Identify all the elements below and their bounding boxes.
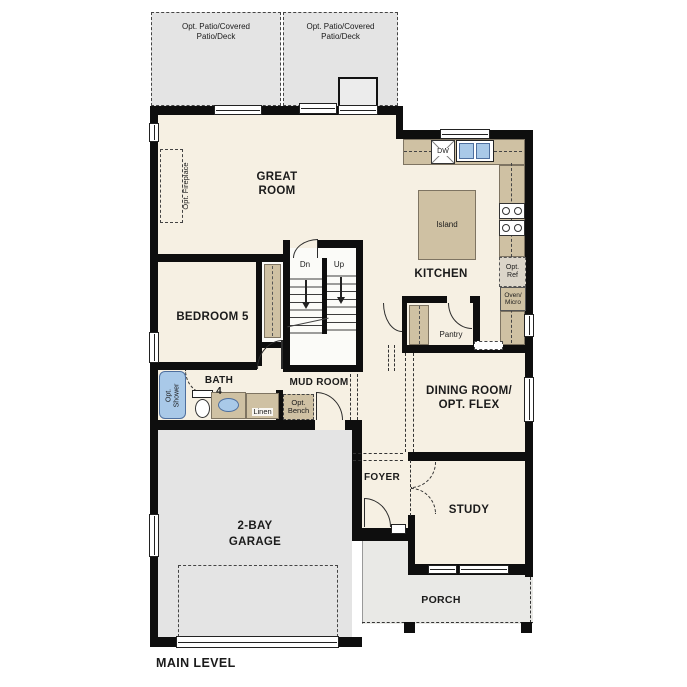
porch-label: PORCH (406, 594, 476, 606)
upper-cabinet-dash (511, 163, 512, 343)
linen-closet: Linen (246, 393, 279, 419)
window (214, 105, 262, 115)
porch-edge-bottom (362, 622, 533, 623)
upper-cabinet-dash (404, 151, 432, 152)
study-left-wall (408, 515, 415, 575)
dishwasher-label: DW (436, 148, 450, 156)
stair-top-wall (318, 240, 363, 248)
burner-icon (502, 207, 510, 215)
mudroom-garage-door-leaf (316, 392, 318, 420)
cooktop-burners (499, 203, 525, 219)
bedroom5-door-leaf (281, 340, 283, 369)
sink-basin-left (459, 143, 474, 159)
stairs-up-arrow (340, 277, 342, 301)
garage-door (176, 636, 339, 648)
stair-left-wall (283, 240, 290, 372)
stairs-up-label: Up (328, 260, 350, 270)
foyer-label: FOYER (352, 472, 412, 483)
stair-right-wall (356, 248, 363, 372)
window (149, 514, 159, 557)
exterior-wall-right (525, 130, 533, 577)
burner-icon (514, 207, 522, 215)
opt-bench: Opt. Bench (283, 394, 314, 420)
great-room-label: GREAT ROOM (227, 171, 327, 198)
kitchen-hall-dash (394, 345, 395, 371)
patio-right-label: Opt. Patio/Covered Patio/Deck (284, 22, 397, 42)
island-label: Island (418, 220, 476, 230)
patio-bump-out (338, 77, 378, 107)
dining-study-wall (408, 452, 533, 461)
linen-label: Linen (252, 408, 272, 416)
pantry-top-wall (470, 296, 480, 303)
stair-door-leaf (317, 239, 319, 258)
opt-wall-feature-dash (474, 341, 503, 350)
bedroom5-label: BEDROOM 5 (150, 311, 275, 325)
closet-rod-line (272, 266, 273, 336)
garage-door-setback (178, 565, 338, 637)
opt-refrigerator: Opt. Ref (499, 257, 526, 287)
window (149, 332, 159, 363)
window (428, 565, 457, 574)
kitchen-counter-lower (500, 311, 525, 345)
patio-left-label: Opt. Patio/Covered Patio/Deck (155, 22, 277, 42)
stair-divider (322, 258, 327, 334)
opt-fireplace-outline (160, 149, 183, 223)
window (149, 123, 159, 142)
dining-label: DINING ROOM/ OPT. FLEX (407, 385, 531, 412)
opt-shower-label: Opt. Shower (166, 369, 181, 423)
sliding-door (299, 103, 337, 114)
vanity-sink (218, 398, 239, 412)
exterior-wall-left (150, 106, 158, 647)
garage-label: 2-BAY GARAGE (195, 518, 315, 550)
cooktop-burners (499, 220, 525, 236)
pantry-label: Pantry (425, 330, 477, 340)
burner-icon (502, 224, 510, 232)
garage-top-wall (345, 420, 362, 430)
kitchen-hall-dash (388, 345, 389, 371)
study-door-dash-line (410, 460, 411, 516)
window (524, 314, 534, 337)
sink-basin-right (476, 143, 490, 159)
window (459, 565, 509, 574)
stair-bottom-wall (283, 365, 363, 372)
bedroom5-top-wall (150, 254, 285, 262)
porch-post (521, 622, 532, 633)
porch-edge-right (530, 577, 531, 623)
stairs-down-label: Dn (294, 260, 316, 270)
foyer-soffit-dash (353, 460, 403, 461)
window (338, 105, 378, 115)
front-door-leaf (364, 498, 366, 527)
plan-title: MAIN LEVEL (156, 656, 296, 670)
kitchen-label: KITCHEN (391, 268, 491, 282)
mud-room-label: MUD ROOM (284, 377, 354, 388)
oven-micro-cabinet: Oven/ Micro (500, 287, 526, 311)
floor-plan: Opt. Patio/Covered Patio/Deck Opt. Patio… (0, 0, 687, 687)
dishwasher: DW (431, 140, 455, 164)
pantry-shelf-dash (419, 306, 420, 344)
dining-opening-dash (405, 353, 406, 452)
pantry-top-wall (402, 296, 447, 303)
front-door-sidelight (391, 524, 406, 534)
burner-icon (514, 224, 522, 232)
foyer-soffit-dash (353, 453, 403, 454)
porch-floor-left (362, 541, 408, 624)
upper-cabinet-dash (494, 151, 522, 152)
kitchen-dining-wall (402, 345, 533, 353)
toilet-bowl (195, 399, 210, 418)
mudroom-opening-dash (357, 374, 358, 420)
window (440, 129, 490, 139)
opt-fireplace-label: Opt. Fireplace (182, 149, 192, 223)
stairs-down-arrow (305, 280, 307, 306)
study-label: STUDY (434, 504, 504, 518)
porch-post (404, 622, 415, 633)
bath4-label: BATH 4 (194, 375, 244, 397)
